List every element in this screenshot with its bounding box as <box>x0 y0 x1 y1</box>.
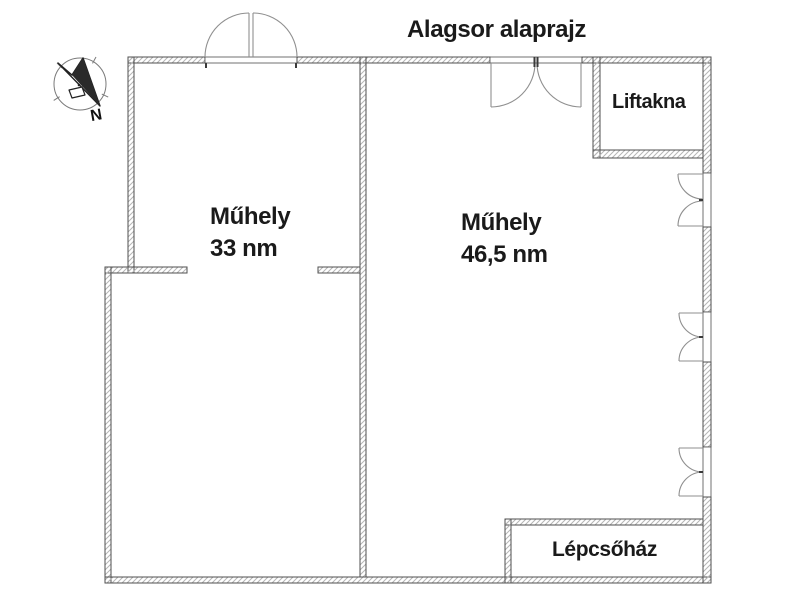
right-wall-seg-3 <box>703 362 711 447</box>
room-name: Műhely <box>210 201 290 233</box>
step-ledge-wall <box>105 267 187 273</box>
room-label-elevator-shaft: Liftakna <box>612 91 685 114</box>
walls <box>105 57 711 583</box>
room-label-workshop-left: Műhely 33 nm <box>210 201 290 265</box>
right-wall-seg-1 <box>703 57 711 173</box>
page-title: Alagsor alaprajz <box>407 16 586 44</box>
door-swing-arc <box>537 63 581 107</box>
top-door-opening-left <box>205 57 297 63</box>
room-area: 33 nm <box>210 233 290 265</box>
floorplan-drawing: N <box>0 0 800 600</box>
door-swing-arc <box>679 337 703 361</box>
staircase-left-wall <box>505 519 511 583</box>
middle-partition-stub <box>318 267 360 273</box>
door-swing-arc <box>679 448 703 472</box>
left-wall-lower <box>105 267 111 583</box>
compass-base-quad <box>69 87 85 98</box>
room-name: Műhely <box>461 207 548 239</box>
liftakna-left-wall <box>593 57 600 158</box>
door-swing-arc <box>253 13 297 57</box>
compass-rose: N <box>54 57 108 125</box>
left-wall-upper <box>128 57 134 273</box>
door-leaf <box>249 13 253 57</box>
door-leaf <box>491 63 581 107</box>
right-wall-seg-4 <box>703 497 711 583</box>
door-swing-arc <box>679 313 703 337</box>
door-swing-arc <box>679 472 703 496</box>
top-wall-left <box>128 57 205 63</box>
exterior-double-door <box>205 13 297 57</box>
door-swing-arc <box>678 174 703 199</box>
right-door-opening-3 <box>703 447 711 497</box>
bottom-wall <box>105 577 711 583</box>
room-label-workshop-right: Műhely 46,5 nm <box>461 207 548 271</box>
right-door-opening-1 <box>703 173 711 227</box>
room-label-staircase: Lépcsőház <box>552 538 657 562</box>
right-wall-seg-2 <box>703 227 711 312</box>
interior-double-door <box>491 63 581 107</box>
room-area: 46,5 nm <box>461 239 548 271</box>
door-swing-arc <box>491 63 535 107</box>
top-door-opening-right <box>490 57 582 63</box>
top-wall-right <box>582 57 711 63</box>
compass-north-label: N <box>89 106 103 125</box>
top-wall-middle <box>297 57 490 63</box>
right-door-opening-2 <box>703 312 711 362</box>
liftakna-bottom-wall <box>593 150 703 158</box>
door-swing-arc <box>678 201 703 226</box>
middle-partition-wall <box>360 57 366 577</box>
staircase-top-wall <box>505 519 703 525</box>
floorplan-canvas: N Alagsor alaprajz Műhely 33 nm Műhely 4… <box>0 0 800 600</box>
door-swing-arc <box>205 13 249 57</box>
compass-center-dot <box>78 84 81 87</box>
